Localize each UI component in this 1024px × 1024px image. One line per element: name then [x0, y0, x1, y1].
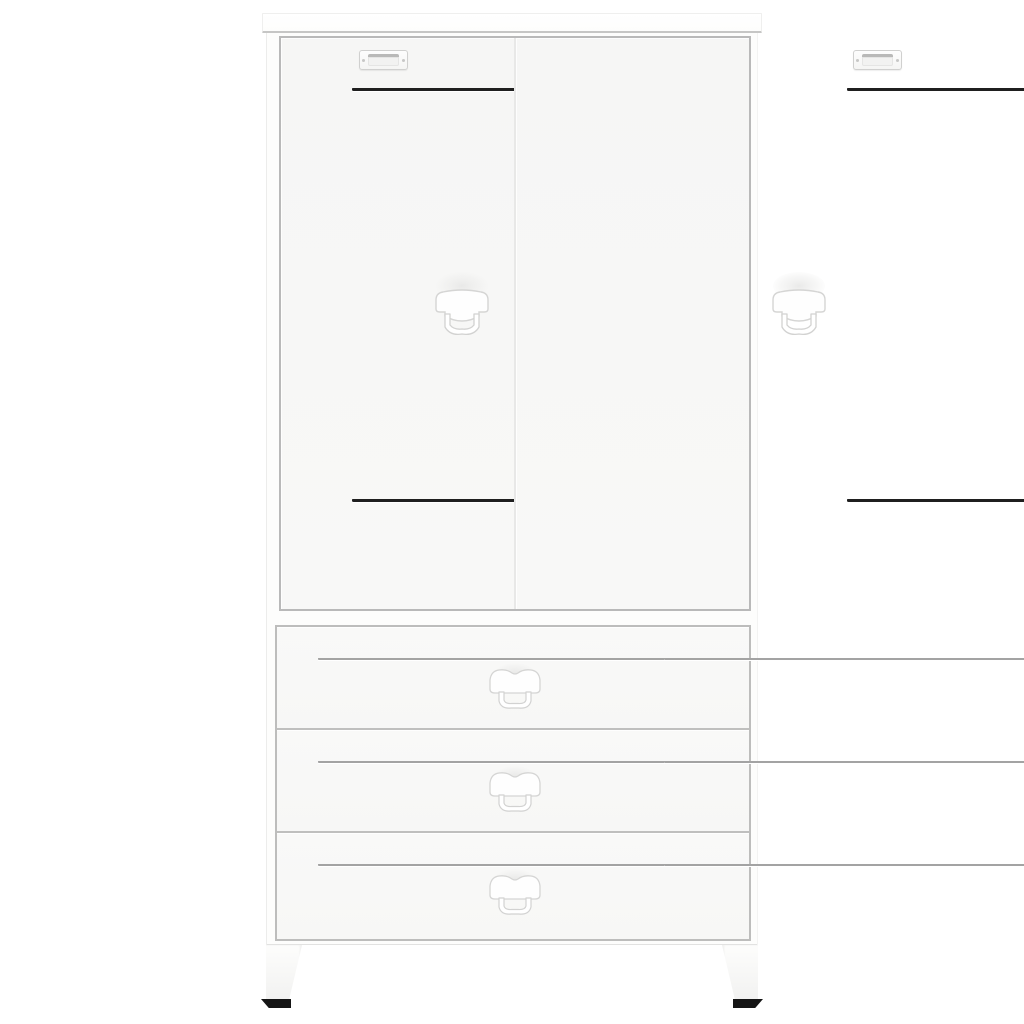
drawer-vent-grille-left [318, 761, 363, 802]
right-door-latch-handle [765, 268, 833, 344]
right-door [516, 38, 749, 609]
product-photo-white-industrial-wardrobe [0, 0, 1024, 1024]
drawer-1 [277, 627, 749, 728]
screw-icon [362, 59, 365, 62]
drawer-1-handle [487, 661, 543, 713]
screw-icon [896, 59, 899, 62]
label-card-window [862, 54, 893, 66]
vent-slat [664, 761, 1024, 763]
cabinet-body [266, 33, 758, 945]
screw-icon [856, 59, 859, 62]
left-foot-pad [261, 999, 291, 1008]
drawer-2 [277, 728, 749, 831]
drawer-3 [277, 831, 749, 939]
drawer-vent-grille-right [664, 864, 709, 905]
door-vent-grille-upper-right [847, 88, 909, 148]
vent-slat [664, 864, 1024, 866]
drawer-vent-grille-right [664, 761, 709, 802]
left-door-latch-handle [428, 268, 496, 344]
right-foot-pad [733, 999, 763, 1008]
vent-slat [664, 658, 1024, 660]
left-door [281, 38, 514, 609]
drawer-3-handle [487, 867, 543, 919]
door-section [279, 36, 751, 611]
door-vent-grille-upper-left [352, 88, 414, 148]
door-vent-grille-lower-right [847, 499, 909, 562]
drawer-vent-grille-left [318, 658, 363, 699]
right-leg [722, 945, 758, 1000]
door-vent-grille-lower-left [352, 499, 414, 562]
drawer-section [275, 625, 751, 941]
wardrobe-cabinet [262, 13, 762, 1013]
label-card-window [368, 54, 399, 66]
drawer-vent-grille-right [664, 658, 709, 699]
left-leg [266, 945, 302, 1000]
cabinet-top-panel [262, 13, 762, 33]
label-card-holder [359, 50, 408, 70]
label-card-holder [853, 50, 902, 70]
vent-slat [847, 499, 1024, 502]
drawer-vent-grille-left [318, 864, 363, 905]
drawer-2-handle [487, 764, 543, 816]
screw-icon [402, 59, 405, 62]
vent-slat [847, 88, 1024, 91]
